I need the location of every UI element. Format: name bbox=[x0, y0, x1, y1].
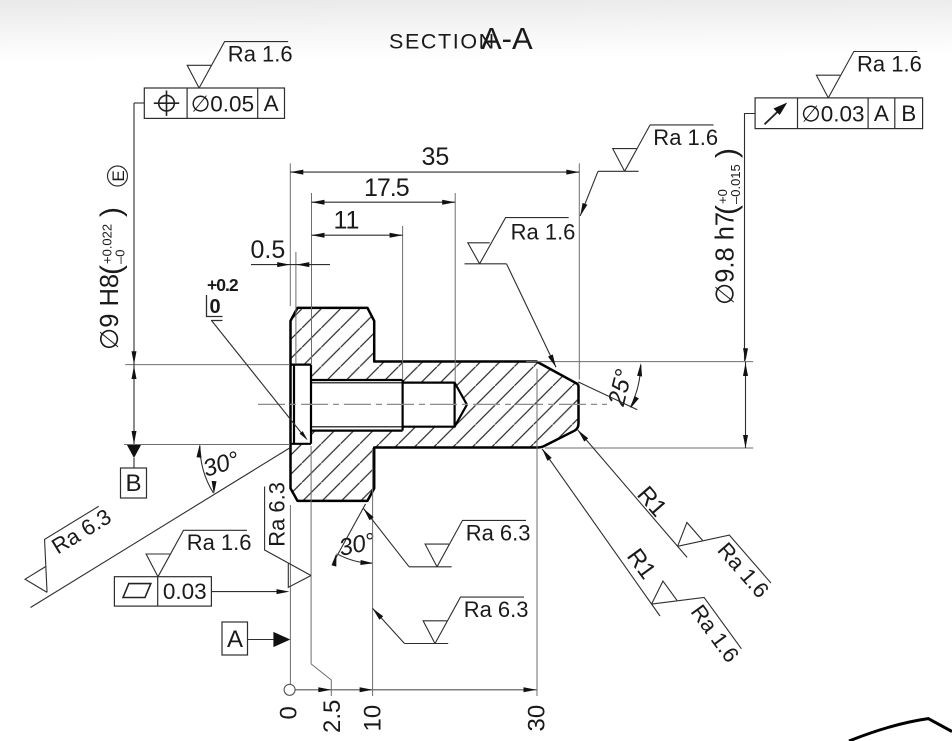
svg-text:0.5: 0.5 bbox=[251, 236, 286, 264]
svg-text:B: B bbox=[126, 470, 142, 497]
svg-text:Ra 1.6: Ra 1.6 bbox=[187, 530, 252, 555]
svg-text:11: 11 bbox=[334, 207, 360, 235]
svg-text:B: B bbox=[901, 101, 916, 126]
svg-text:10: 10 bbox=[360, 705, 387, 732]
svg-text:∅0.03: ∅0.03 bbox=[801, 101, 864, 126]
svg-text:0: 0 bbox=[210, 296, 221, 318]
svg-text:E: E bbox=[109, 170, 128, 181]
svg-text:∅0.05: ∅0.05 bbox=[191, 92, 254, 117]
svg-text:(: ( bbox=[95, 265, 128, 275]
svg-text:Ra 1.6: Ra 1.6 bbox=[228, 42, 293, 67]
svg-text:Ra 1.6: Ra 1.6 bbox=[653, 125, 718, 150]
svg-text:(: ( bbox=[711, 205, 744, 215]
svg-text:Ra 6.3: Ra 6.3 bbox=[265, 482, 290, 547]
svg-text:Ra 1.6: Ra 1.6 bbox=[511, 220, 576, 245]
svg-text:): ) bbox=[95, 207, 128, 217]
svg-text:A: A bbox=[874, 101, 889, 126]
svg-text:–0: –0 bbox=[113, 250, 128, 264]
svg-text:–0.015: –0.015 bbox=[728, 164, 743, 204]
svg-text:A-A: A-A bbox=[481, 21, 533, 56]
svg-text:17.5: 17.5 bbox=[364, 174, 409, 202]
svg-text:+0.2: +0.2 bbox=[207, 275, 239, 295]
svg-text:0.03: 0.03 bbox=[163, 579, 207, 604]
svg-text:Ra 1.6: Ra 1.6 bbox=[857, 51, 922, 76]
svg-text:SECTION: SECTION bbox=[389, 29, 496, 53]
svg-text:2.5: 2.5 bbox=[319, 700, 346, 733]
svg-text:30: 30 bbox=[524, 705, 551, 732]
svg-text:35: 35 bbox=[422, 143, 450, 171]
svg-text:A: A bbox=[227, 626, 243, 653]
svg-text:Ra 6.3: Ra 6.3 bbox=[464, 597, 529, 622]
svg-text:∅9 H8: ∅9 H8 bbox=[96, 274, 124, 350]
svg-text:∅9.8 h7: ∅9.8 h7 bbox=[712, 212, 740, 305]
svg-text:A: A bbox=[264, 91, 279, 116]
svg-text:Ra 6.3: Ra 6.3 bbox=[466, 520, 531, 545]
svg-text:0: 0 bbox=[276, 706, 303, 719]
